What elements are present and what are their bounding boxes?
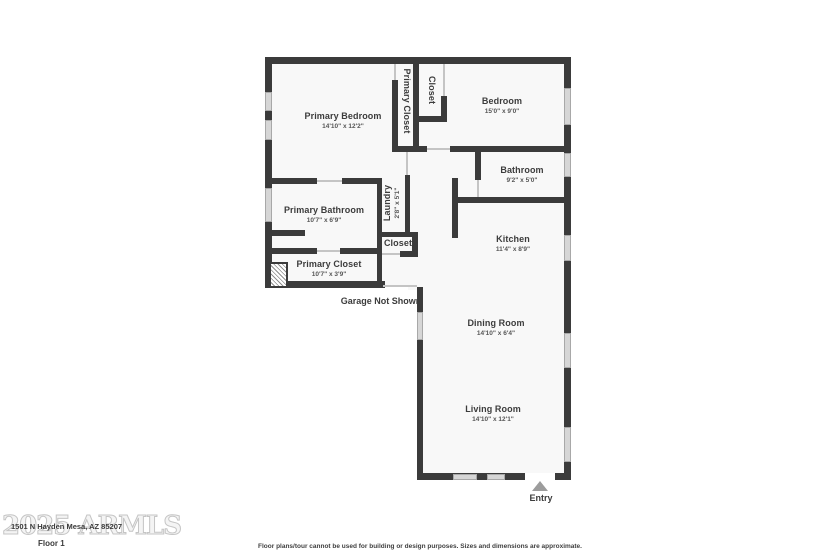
wall [265,178,317,184]
room-dims: 10'7" x 6'9" [284,217,364,225]
room-label-primary-bathroom: Primary Bathroom 10'7" x 6'9" [284,205,364,225]
wall [342,178,382,184]
room-dims: 14'10" x 12'1" [465,416,521,424]
room-label-dining-room: Dining Room 14'10" x 6'4" [467,318,524,338]
room-dims: 14'10" x 12'2" [304,123,381,131]
door-opening [383,285,417,287]
door-opening [317,250,340,252]
door-opening [406,152,408,175]
door-opening [394,64,396,80]
door-opening [382,253,400,255]
wall [452,178,458,238]
entry-label: Entry [529,493,552,503]
wall [475,152,481,180]
door-opening [427,148,450,150]
room-label-bedroom: Bedroom 15'0" x 9'0" [482,96,522,116]
wall [392,80,398,147]
room-name: Closet [425,76,437,104]
wall [450,146,571,152]
room-name: Primary Closet [400,69,412,134]
room-label-living-room: Living Room 14'10" x 12'1" [465,404,521,424]
room-label-bathroom: Bathroom 9'2" x 5'0" [500,165,543,185]
entry-label-text: Entry [529,493,552,503]
window [453,474,477,480]
window [564,427,571,462]
floor-plan-page: Primary Bedroom 14'10" x 12'2" Bedroom 1… [0,0,840,560]
wall [340,248,382,254]
wall [413,64,419,147]
wall [377,232,382,287]
room-name: Bedroom [482,96,522,108]
room-label-laundry: Laundry 2'8" x 5'1" [382,185,402,221]
window [564,88,571,125]
room-name: Primary Closet [297,259,362,271]
room-name: Bathroom [500,165,543,177]
door-opening [443,64,445,96]
room-label-kitchen: Kitchen 11'4" x 8'9" [496,234,530,254]
room-label-primary-closet-room: Primary Closet 10'7" x 3'9" [297,259,362,279]
garage-note: Garage Not Shown [341,296,422,306]
room-label-primary-closet-strip: Primary Closet [400,69,412,134]
window [564,153,571,177]
room-dims: 2'8" x 5'1" [394,185,402,221]
room-name: Laundry [382,185,394,221]
room-name: Primary Bathroom [284,205,364,217]
room-name: Living Room [465,404,521,416]
room-dims: 11'4" x 8'9" [496,246,530,254]
wall [265,248,317,254]
room-label-hall-closet: Closet [384,238,412,250]
window [265,188,272,222]
wall [400,251,418,257]
room-name: Kitchen [496,234,530,246]
window [564,333,571,368]
room-dims: 10'7" x 3'9" [297,271,362,279]
wall [453,197,571,203]
floor-number-label: Floor 1 [38,539,65,548]
window [417,312,423,340]
wall [413,116,447,122]
window [265,92,272,111]
hatched-area [269,262,288,288]
wall [392,146,427,152]
room-label-bedroom-closet: Closet [425,76,437,104]
property-address: 1501 N Hayden Mesa, AZ 85207 [11,522,122,531]
door-opening [477,180,479,197]
disclaimer-text: Floor plans/tour cannot be used for buil… [0,543,840,550]
floor-area [408,150,568,290]
door-opening [317,180,342,182]
floor-area [420,287,568,477]
room-name: Dining Room [467,318,524,330]
window [487,474,505,480]
wall [405,175,410,237]
wall [265,57,571,64]
window [265,120,272,140]
entry-door-opening [525,473,555,480]
room-label-primary-bedroom: Primary Bedroom 14'10" x 12'2" [304,111,381,131]
room-dims: 9'2" x 5'0" [500,177,543,185]
wall [265,230,305,236]
room-name: Primary Bedroom [304,111,381,123]
window [564,235,571,261]
entry-arrow-icon [532,481,548,491]
garage-note-text: Garage Not Shown [341,296,422,306]
room-dims: 14'10" x 6'4" [467,330,524,338]
room-dims: 15'0" x 9'0" [482,108,522,116]
room-name: Closet [384,238,412,250]
